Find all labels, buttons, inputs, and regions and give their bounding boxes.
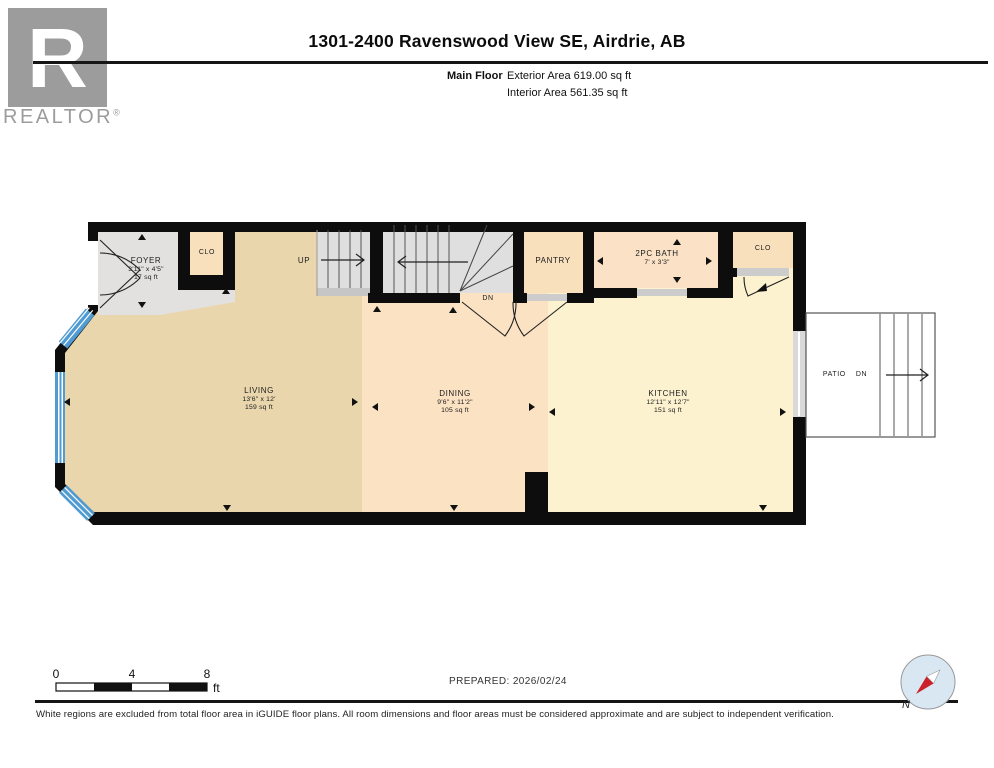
scale-tick-8: 8 xyxy=(204,667,211,681)
foyer-closet-wall xyxy=(178,222,190,282)
room-label-patio: PATIODN xyxy=(823,371,867,379)
room-name: 2PC BATH xyxy=(635,249,678,259)
room-dimensions: 12'11" x 12'7" xyxy=(646,399,689,407)
room-label-dn: DN xyxy=(482,295,493,303)
window-mullion xyxy=(62,372,64,463)
patio-dn-label: DN xyxy=(856,371,867,378)
room-dimensions: 9'6" x 11'2" xyxy=(437,399,472,407)
stair-pantry-wall xyxy=(513,222,524,303)
room-name: LIVING xyxy=(242,386,275,396)
floorplan-svg: 0 4 8 ft N xyxy=(0,0,994,768)
room-dimensions: 7' x 3'3" xyxy=(635,259,678,267)
patio-sliding-door-gap xyxy=(798,332,800,416)
room-dimensions: 13'6" x 12' xyxy=(242,396,275,404)
patio-door-frame-bottom xyxy=(793,417,806,421)
room-name: DN xyxy=(482,295,493,303)
scale-tick-0: 0 xyxy=(53,667,60,681)
room-label-kitchen: KITCHEN 12'11" x 12'7" 151 sq ft xyxy=(646,389,689,415)
room-dimensions: 3'11" x 4'5" xyxy=(128,266,163,274)
scale-bar-segment xyxy=(94,683,132,691)
disclaimer-text: White regions are excluded from total fl… xyxy=(36,709,976,720)
bottom-wall xyxy=(93,512,806,525)
room-name: CLO xyxy=(755,245,771,253)
room-label-closet-right: CLO xyxy=(755,245,771,253)
scale-bar: 0 4 8 ft xyxy=(53,667,221,695)
window-mullion xyxy=(58,372,60,463)
stair-divider-wall xyxy=(370,222,383,303)
room-area: 159 sq ft xyxy=(242,404,275,412)
patio-door-frame-top xyxy=(793,327,806,331)
room-area: 17 sq ft xyxy=(128,274,163,282)
room-area: 105 sq ft xyxy=(437,407,472,415)
closet-right-stub xyxy=(723,268,737,277)
room-label-foyer: FOYER 3'11" x 4'5" 17 sq ft xyxy=(128,256,163,282)
room-name: PATIO xyxy=(823,371,846,378)
bath-closet-wall xyxy=(718,222,733,298)
room-label-dining: DINING 9'6" x 11'2" 105 sq ft xyxy=(437,389,472,415)
room-label-closet-left: CLO xyxy=(199,249,215,257)
stairs-up-area xyxy=(317,230,372,288)
bath-bottom-wall-right xyxy=(687,288,723,298)
room-name: PANTRY xyxy=(535,256,570,266)
right-wall-upper xyxy=(793,222,806,330)
top-wall xyxy=(88,222,806,232)
room-name: KITCHEN xyxy=(646,389,689,399)
entry-door-opening xyxy=(88,241,98,305)
right-wall-lower xyxy=(793,418,806,525)
room-name: FOYER xyxy=(128,256,163,266)
room-name: CLO xyxy=(199,249,215,257)
scale-tick-4: 4 xyxy=(129,667,136,681)
stairs-up-landing xyxy=(317,288,372,296)
room-label-bath: 2PC BATH 7' x 3'3" xyxy=(635,249,678,267)
bath-bottom-wall-left xyxy=(594,288,637,298)
closet-right-threshold xyxy=(737,268,789,276)
room-label-living: LIVING 13'6" x 12' 159 sq ft xyxy=(242,386,275,412)
dining-kitchen-stub-wall xyxy=(525,472,548,512)
scale-unit: ft xyxy=(213,681,220,695)
closet-left-bottom-wall xyxy=(178,275,235,290)
room-label-pantry: PANTRY xyxy=(535,256,570,266)
scale-bar-segment xyxy=(169,683,207,691)
pantry-door-stub-left xyxy=(513,293,527,303)
room-name: UP xyxy=(298,256,310,266)
bath-threshold xyxy=(637,289,687,296)
window-vertical xyxy=(55,372,65,463)
room-label-up: UP xyxy=(298,256,310,266)
footer-rule xyxy=(35,700,958,703)
room-name: DINING xyxy=(437,389,472,399)
pantry-bath-wall xyxy=(583,222,594,303)
room-area: 151 sq ft xyxy=(646,407,689,415)
floorplan-page: R REALTOR® 1301-2400 Ravenswood View SE,… xyxy=(0,0,994,768)
stair-bottom-wall xyxy=(368,293,460,303)
pantry-threshold xyxy=(527,294,567,301)
prepared-date: PREPARED: 2026/02/24 xyxy=(449,676,567,687)
